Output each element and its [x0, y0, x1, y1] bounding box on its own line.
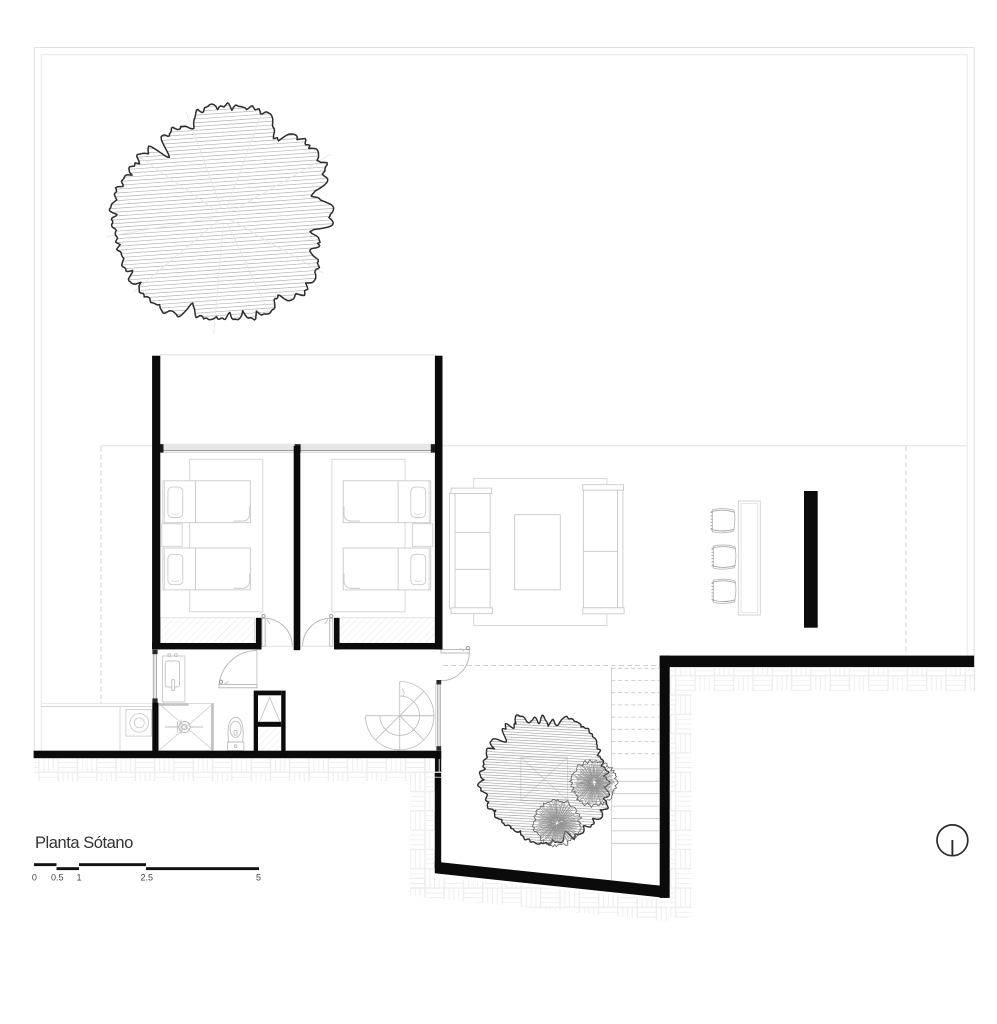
svg-text:0.5: 0.5 [51, 873, 64, 883]
svg-text:0: 0 [32, 873, 37, 883]
svg-text:2.5: 2.5 [141, 873, 154, 883]
svg-text:5: 5 [256, 873, 261, 883]
svg-text:Planta Sótano: Planta Sótano [35, 834, 133, 852]
svg-text:1: 1 [77, 873, 82, 883]
